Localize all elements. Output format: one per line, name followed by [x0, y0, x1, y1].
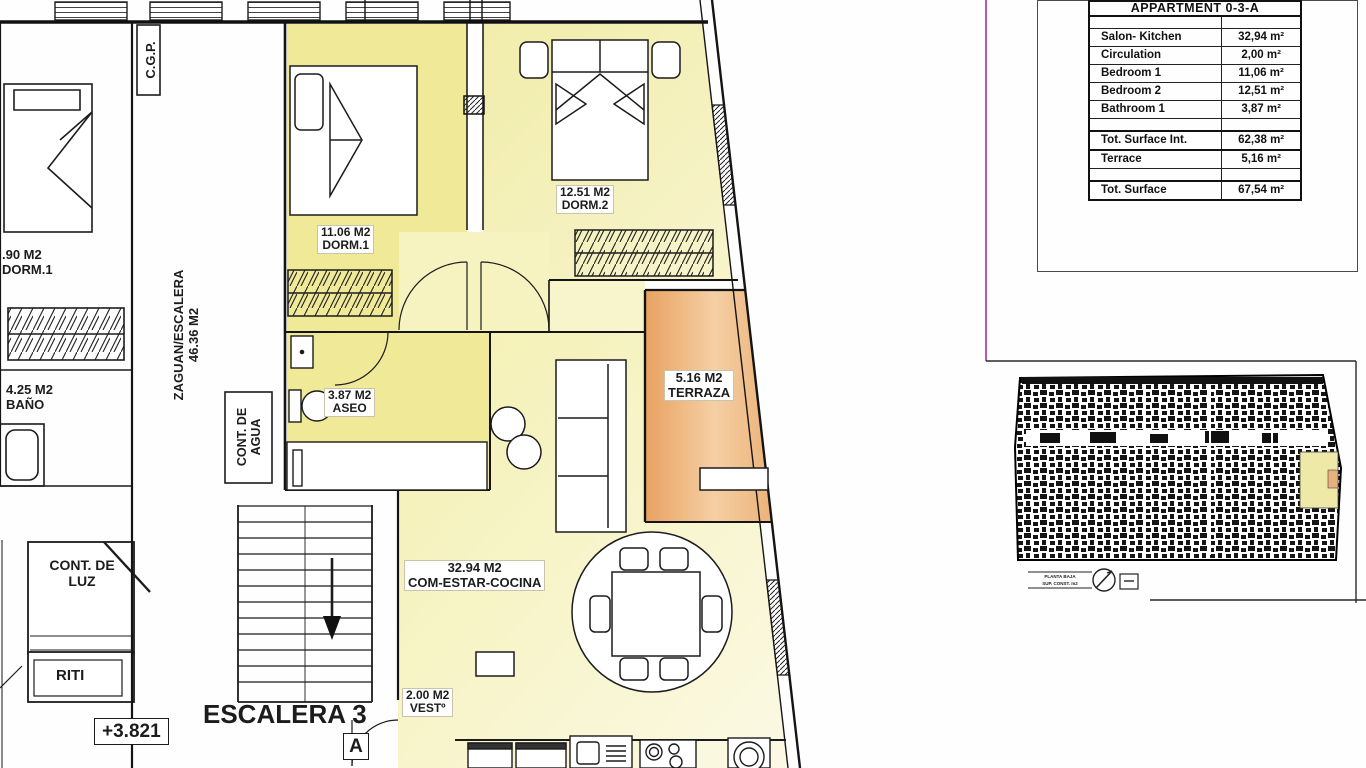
sofa [556, 360, 626, 532]
label-neighbor-bano: 4.25 M2 BAÑO [6, 383, 53, 412]
neighbor-dorm-name: DORM.1 [2, 262, 53, 277]
chair [702, 596, 722, 632]
dorm2-area: 12.51 M2 [560, 185, 610, 199]
dorm1-area: 11.06 M2 [321, 225, 370, 239]
keyplan-caption-2: SUP. CONST. m2 [1027, 581, 1093, 586]
table-row: Bedroom 1 11,06 m² [1089, 65, 1301, 83]
vanity-counter [287, 442, 487, 490]
label-stair-letter: A [343, 733, 369, 760]
nightstand [520, 42, 548, 78]
table-row: Salon- Kitchen 32,94 m² [1089, 29, 1301, 47]
cont-luz-1: CONT. DE [49, 557, 114, 573]
label-dorm2: 12.51 M2 DORM.2 [556, 185, 614, 214]
toilet-tank [289, 390, 301, 422]
key-plan [1015, 375, 1341, 591]
chair [660, 548, 688, 570]
vest-area: 2.00 M2 [406, 688, 449, 702]
label-aseo: 3.87 M2 ASEO [324, 388, 375, 417]
table-row: Circulation 2,00 m² [1089, 47, 1301, 65]
nightstand [652, 42, 680, 78]
cont-luz-2: LUZ [68, 573, 95, 589]
chair [660, 658, 688, 680]
label-cont-agua: CONT. DE AGUA [235, 391, 267, 483]
neighbor-unit [0, 84, 132, 486]
label-dorm1: 11.06 M2 DORM.1 [317, 225, 374, 254]
neighbor-dorm-area: .90 M2 [2, 247, 42, 262]
stair-escalera3 [238, 505, 372, 702]
label-neighbor-dorm: .90 M2 DORM.1 [2, 248, 53, 277]
neighbor-bano-area: 4.25 M2 [6, 382, 53, 397]
terrace-bench [700, 468, 768, 490]
zaguan-name: ZAGUAN/ESCALERA [171, 270, 186, 401]
neighbor-bed [4, 84, 92, 232]
table-title: APPARTMENT 0-3-A [1089, 1, 1301, 16]
label-salon: 32.94 M2 COM-ESTAR-COCINA [404, 560, 545, 591]
chair [620, 658, 648, 680]
dorm2-name: DORM.2 [562, 198, 609, 212]
neighbor-bano-name: BAÑO [6, 397, 44, 412]
aseo-area: 3.87 M2 [328, 388, 371, 402]
chair [590, 596, 610, 632]
cont-agua-1: CONT. DE [235, 408, 249, 466]
cont-agua-2: AGUA [249, 419, 263, 456]
dorm1-name: DORM.1 [322, 238, 369, 252]
terraza-area: 5.16 M2 [676, 370, 723, 385]
salon-name: COM-ESTAR-COCINA [408, 575, 541, 590]
label-zaguan: ZAGUAN/ESCALERA 46.36 M2 [172, 257, 206, 413]
aseo-name: ASEO [333, 401, 367, 415]
side-table [507, 435, 541, 469]
salon-area: 32.94 M2 [448, 560, 502, 575]
floorplan-sheet: 11.06 M2 DORM.1 12.51 M2 DORM.2 3.87 M2 … [0, 0, 1366, 768]
table-row-terrace: Terrace 5,16 m² [1089, 150, 1301, 169]
keyplan-caption-1: PLANTA BAJA [1027, 574, 1093, 579]
vest-name: VESTº [410, 701, 446, 715]
terraza-name: TERRAZA [668, 385, 730, 400]
table-row: Bathroom 1 3,87 m² [1089, 101, 1301, 119]
table-row-total: Tot. Surface 67,54 m² [1089, 181, 1301, 200]
table-row-total-interior: Tot. Surface Int. 62,38 m² [1089, 131, 1301, 150]
chair [620, 548, 648, 570]
label-escalera: ESCALERA 3 [203, 700, 367, 729]
table-row: Bedroom 2 12,51 m² [1089, 83, 1301, 101]
sideboard [476, 652, 514, 676]
column [464, 96, 484, 114]
label-level: +3.821 [94, 718, 169, 745]
label-terraza: 5.16 M2 TERRAZA [664, 370, 734, 401]
area-summary-table: APPARTMENT 0-3-A Salon- Kitchen 32,94 m²… [1088, 0, 1302, 201]
kitchen-units [455, 736, 786, 768]
label-riti: RITI [56, 668, 84, 685]
label-cgp: C.G.P. [140, 22, 162, 98]
zaguan-area: 46.36 M2 [186, 308, 201, 362]
top-boundary [0, 0, 708, 22]
table-title-row: APPARTMENT 0-3-A [1089, 1, 1301, 16]
dining-table [612, 572, 700, 656]
label-vest: 2.00 M2 VESTº [402, 688, 453, 717]
label-cont-luz: CONT. DE LUZ [44, 558, 120, 589]
